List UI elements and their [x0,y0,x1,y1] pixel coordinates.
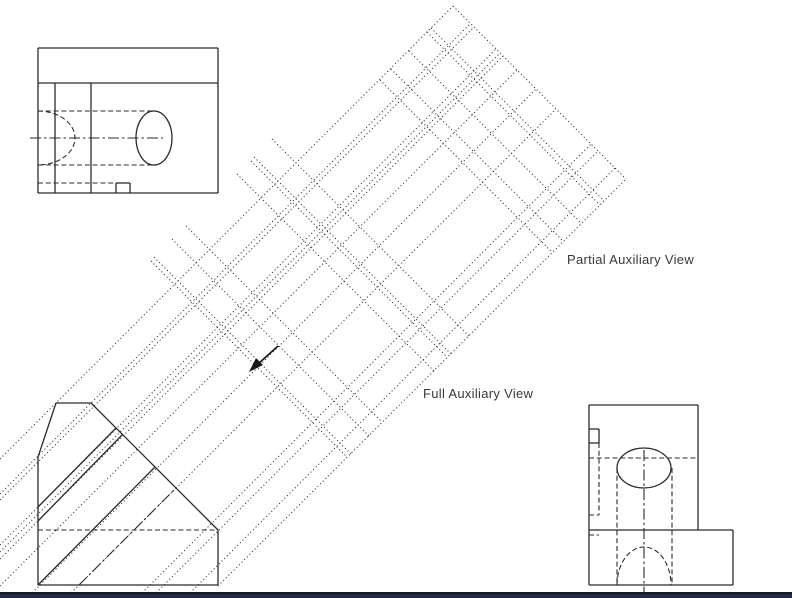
front-view-solid-line [38,434,123,521]
bottom-window-bar [0,594,792,598]
projection-line [185,168,615,598]
front-view-solid-line [38,403,56,457]
projection-line [186,226,382,422]
projection-line [137,144,591,598]
projection-line [237,174,434,371]
projection-line [251,161,447,357]
projection-lines [0,6,626,598]
projection-line [0,70,517,586]
projection-line [453,6,626,179]
projection-line [151,261,347,457]
full-auxiliary-view-label: Full Auxiliary View [423,387,533,401]
front-view-solid-line [91,403,218,530]
projection-line [218,179,626,586]
projection-line [154,257,351,454]
view-direction-arrow-shaft [258,346,278,364]
drawing-svg [0,0,792,598]
projection-line [254,157,451,354]
view-direction-arrow-head [249,358,263,372]
projection-line [427,32,600,205]
projection-line [0,6,453,459]
projection-line [0,24,470,494]
projection-line [431,28,604,201]
projection-line [172,239,369,436]
partial-auxiliary-view-label: Partial Auxiliary View [567,253,694,267]
front-view-dashdot-line [79,488,176,585]
side-view [589,405,733,592]
projection-line [391,69,563,241]
projection-line [380,80,552,252]
top-view [30,48,218,193]
projection-line [409,51,581,223]
projection-line [0,53,500,552]
projection-line [272,139,469,336]
projection-line [0,27,474,500]
drawing-canvas: Partial Auxiliary View Full Auxiliary Vi… [0,0,792,598]
